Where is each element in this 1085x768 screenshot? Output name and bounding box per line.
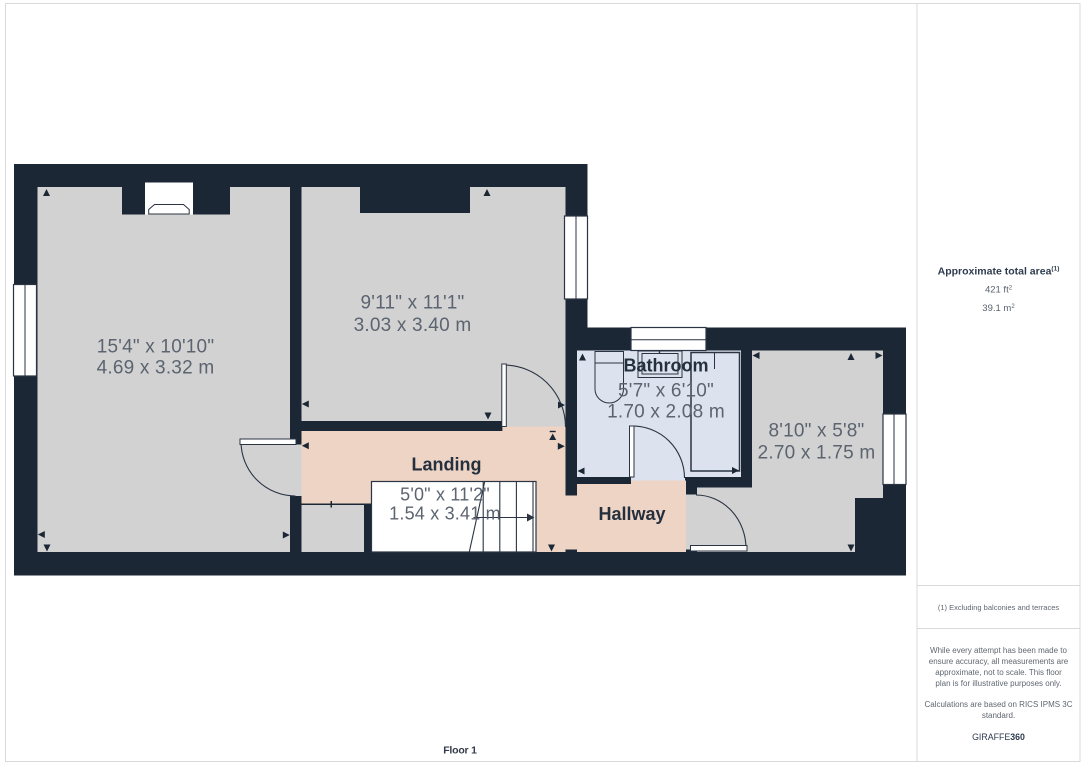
svg-text:4.69 x 3.32 m: 4.69 x 3.32 m — [97, 358, 215, 379]
svg-text:2.70 x 1.75 m: 2.70 x 1.75 m — [758, 442, 876, 463]
svg-text:1.54 x 3.41 m: 1.54 x 3.41 m — [389, 503, 501, 523]
svg-text:9'11" x 11'1": 9'11" x 11'1" — [361, 292, 465, 313]
svg-text:GIRAFFE360: GIRAFFE360 — [972, 732, 1025, 742]
svg-text:39.1 m2: 39.1 m2 — [982, 303, 1015, 314]
svg-text:Floor 1: Floor 1 — [443, 745, 477, 757]
svg-text:1.70 x 2.08 m: 1.70 x 2.08 m — [607, 402, 725, 423]
svg-text:approximate, not to scale. Thi: approximate, not to scale. This floor — [935, 668, 1062, 677]
svg-text:standard.: standard. — [982, 711, 1015, 720]
svg-text:ensure accuracy, all measureme: ensure accuracy, all measurements are — [929, 657, 1069, 666]
svg-text:421 ft2: 421 ft2 — [985, 284, 1013, 295]
svg-text:plan is for illustrative purpo: plan is for illustrative purposes only. — [935, 679, 1061, 688]
svg-text:Landing: Landing — [412, 454, 482, 474]
svg-text:Bathroom: Bathroom — [624, 356, 709, 376]
svg-text:(1) Excluding balconies and te: (1) Excluding balconies and terraces — [938, 603, 1060, 612]
svg-text:Calculations are based on RICS: Calculations are based on RICS IPMS 3C — [924, 700, 1072, 709]
svg-text:8'10" x 5'8": 8'10" x 5'8" — [768, 420, 864, 441]
svg-text:While every attempt has been m: While every attempt has been made to — [930, 646, 1068, 655]
svg-text:Approximate total area(1): Approximate total area(1) — [938, 266, 1060, 278]
svg-text:15'4" x 10'10": 15'4" x 10'10" — [97, 337, 215, 358]
svg-text:3.03 x 3.40 m: 3.03 x 3.40 m — [354, 315, 472, 336]
svg-text:5'7" x 6'10": 5'7" x 6'10" — [618, 381, 714, 402]
svg-text:5'0" x 11'2": 5'0" x 11'2" — [400, 484, 490, 504]
svg-text:Hallway: Hallway — [598, 504, 665, 524]
